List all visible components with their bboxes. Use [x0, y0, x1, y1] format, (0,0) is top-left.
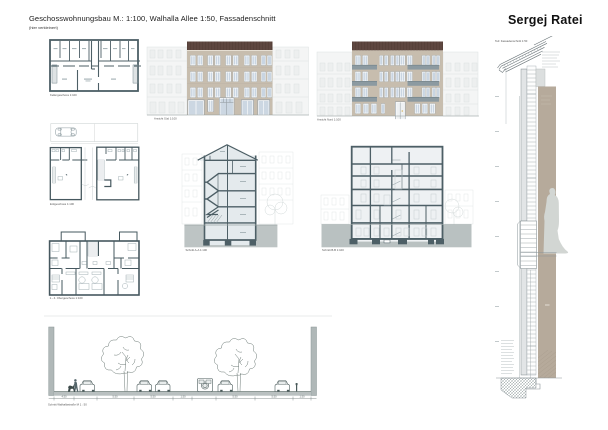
svg-text:5.50: 5.50 — [232, 395, 238, 399]
svg-text:1.50: 1.50 — [180, 395, 186, 399]
svg-text:Ansicht Nord 1:100: Ansicht Nord 1:100 — [317, 118, 341, 122]
svg-text:Schnitt A-A 1:100: Schnitt A-A 1:100 — [186, 248, 208, 252]
svg-text:4.50: 4.50 — [61, 395, 67, 399]
svg-text:Erdgeschoss 1:100: Erdgeschoss 1:100 — [50, 202, 74, 206]
svg-text:5.50: 5.50 — [112, 395, 118, 399]
svg-text:1.- 4. Obergeschoss 1:100: 1.- 4. Obergeschoss 1:100 — [50, 296, 83, 300]
svg-text:Kellergeschoss 1:100: Kellergeschoss 1:100 — [50, 93, 77, 97]
svg-text:Teil: Fassadenschnitt 1:50: Teil: Fassadenschnitt 1:50 — [495, 39, 528, 43]
svg-text:Schnitt Walhallastraße M 1 : 5: Schnitt Walhallastraße M 1 : 50 — [48, 403, 87, 407]
svg-text:1.50: 1.50 — [299, 395, 305, 399]
svg-text:5.50: 5.50 — [271, 395, 277, 399]
svg-text:Schnitt B-B 1:100: Schnitt B-B 1:100 — [322, 248, 344, 252]
svg-text:5.50: 5.50 — [150, 395, 156, 399]
svg-text:Ansicht Süd 1:100: Ansicht Süd 1:100 — [154, 117, 177, 121]
